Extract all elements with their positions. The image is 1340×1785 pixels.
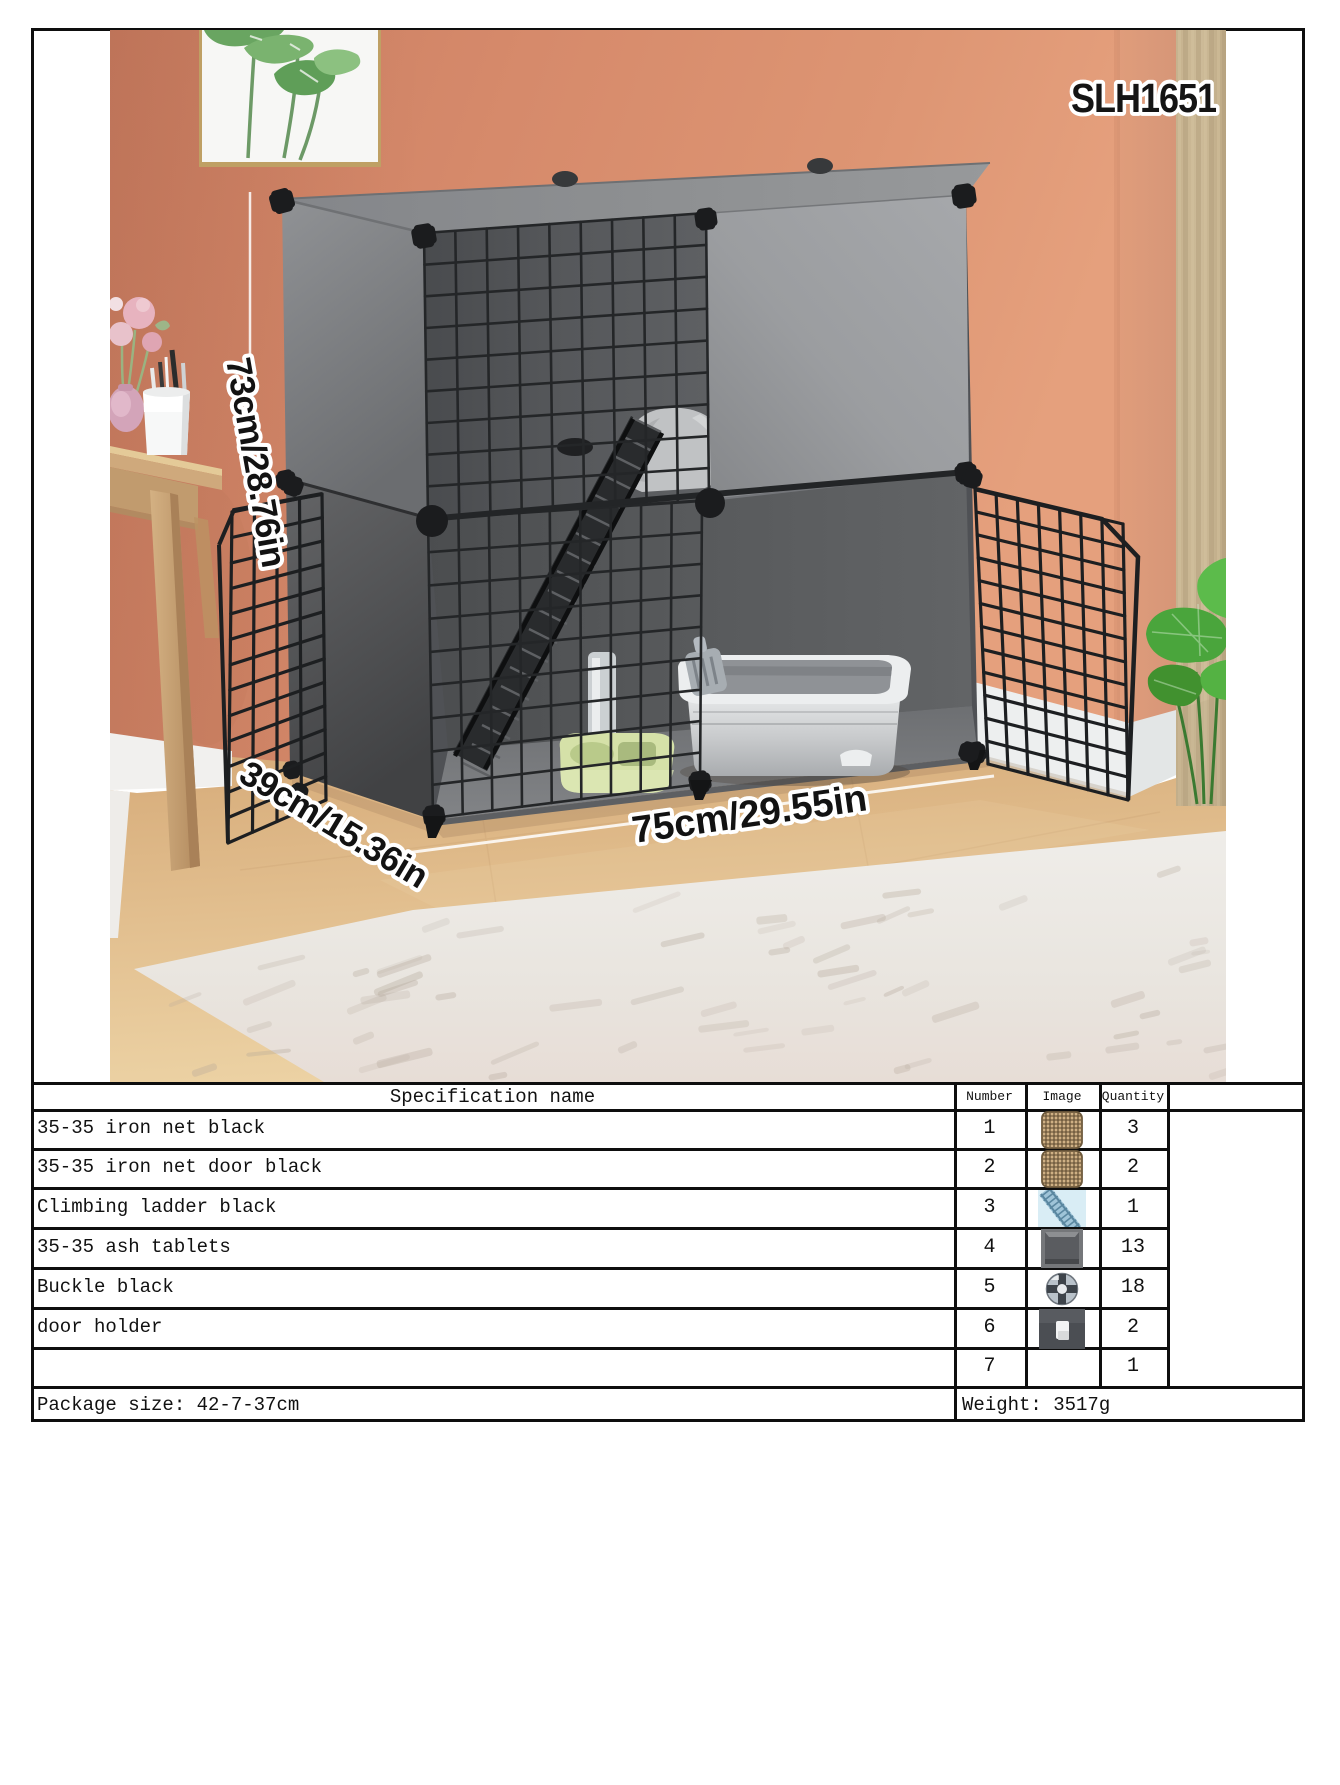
svg-text:SLH1651: SLH1651 [1071, 76, 1217, 121]
